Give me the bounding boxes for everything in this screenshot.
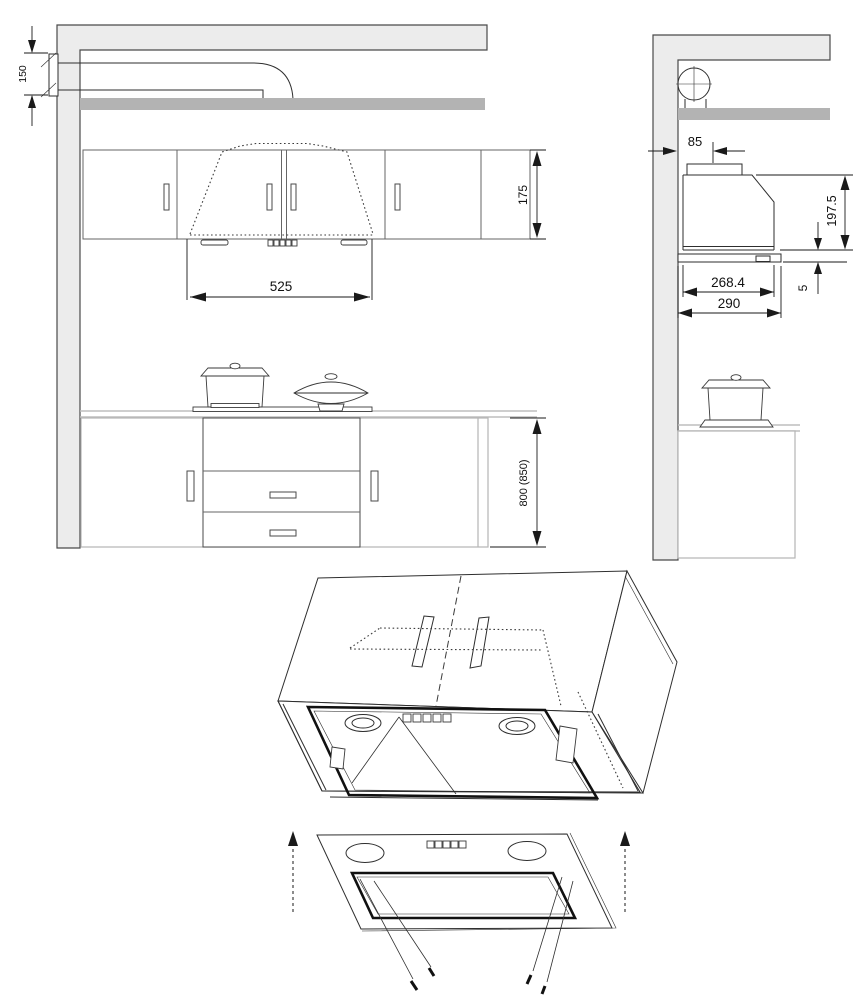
- cabinet-handle: [291, 184, 296, 210]
- hood-button: [423, 714, 431, 722]
- cabinet-front-face: [278, 571, 627, 712]
- wok-base: [318, 404, 344, 411]
- bottom-panel-view: [288, 831, 630, 994]
- dimension-800: 800 (850): [490, 418, 546, 547]
- wok-front: [294, 374, 368, 411]
- drawer-handle: [270, 492, 296, 498]
- screw-right-2: [542, 986, 545, 994]
- filter-clip-left: [330, 747, 345, 769]
- pot-body: [708, 388, 763, 420]
- hood-button: [268, 240, 273, 246]
- dim-label-85: 85: [688, 134, 702, 149]
- panel-button: [459, 841, 466, 848]
- arrowhead: [288, 831, 298, 846]
- drawer-handle: [270, 530, 296, 536]
- dimension-525: 525: [190, 279, 370, 302]
- hood-button: [280, 240, 285, 246]
- hood-button: [274, 240, 279, 246]
- pot-knob: [230, 363, 240, 369]
- arrowhead: [683, 288, 697, 297]
- dim-5-lines: [783, 222, 847, 294]
- drawer-stack: [203, 418, 360, 547]
- arrowhead: [767, 309, 781, 318]
- duct-bottom-line: [58, 90, 263, 99]
- door-handle: [187, 471, 194, 501]
- diagram-canvas: 150 525: [0, 0, 861, 1000]
- wok-knob: [325, 374, 337, 380]
- arrowhead: [190, 293, 206, 302]
- arrowhead: [841, 176, 850, 191]
- dimension-268-4: 268.4: [683, 265, 774, 297]
- pot-body: [206, 376, 264, 407]
- lift-arrow-right: [620, 831, 630, 912]
- side-shelf: [678, 108, 830, 120]
- upper-cabinet-run: [83, 150, 530, 239]
- arrowhead: [841, 235, 850, 250]
- upper-cabinets: [83, 150, 530, 239]
- dim-label-525: 525: [270, 279, 293, 294]
- panel-button: [443, 841, 450, 848]
- cabinet-handle: [164, 184, 169, 210]
- duct-circle-cross: [676, 66, 712, 102]
- hood-lamp-left: [201, 240, 228, 245]
- arrowhead: [760, 288, 774, 297]
- hood-body-outline: [683, 175, 774, 250]
- dim-label-150: 150: [17, 65, 29, 83]
- pot-front: [201, 363, 269, 407]
- hood-button: [433, 714, 441, 722]
- screw-left-2: [429, 968, 434, 976]
- side-section-view: 85 197.5 5 26: [648, 35, 853, 560]
- arrowhead: [28, 95, 36, 108]
- side-base-cabinet: [678, 431, 795, 558]
- dim-label-197-5: 197.5: [825, 195, 839, 226]
- pot-base: [700, 420, 773, 427]
- hood-duct-collar: [687, 164, 742, 175]
- front-elevation-view: 150 525: [17, 25, 546, 548]
- panel-button: [427, 841, 434, 848]
- dim-label-5: 5: [796, 284, 810, 291]
- arrowhead: [713, 147, 727, 155]
- duct-top-line: [58, 63, 293, 99]
- hood-button: [413, 714, 421, 722]
- lift-arrow-left: [288, 831, 298, 912]
- pot-lid: [702, 380, 770, 388]
- panel-clip: [756, 256, 770, 262]
- hood-lamp-right: [341, 240, 367, 245]
- arrowhead: [814, 238, 822, 250]
- hood-button: [443, 714, 451, 722]
- dim-label-800: 800 (850): [518, 459, 530, 506]
- pot-knob: [731, 375, 741, 381]
- arrowhead: [28, 40, 36, 53]
- cabinet-handle: [395, 184, 400, 210]
- screw-right-1: [527, 975, 531, 984]
- panel-button: [435, 841, 442, 848]
- installation-diagram: 150 525: [0, 0, 861, 1000]
- hood-side-profile: [678, 164, 781, 262]
- arrowhead: [533, 419, 542, 434]
- pot-base: [211, 404, 259, 408]
- arrowhead: [678, 309, 692, 318]
- filter-clip-right: [556, 726, 577, 763]
- hood-button: [292, 240, 297, 246]
- isometric-hood-view: [278, 571, 677, 800]
- screw-left-1: [411, 981, 417, 990]
- arrowhead: [533, 531, 542, 546]
- base-cabinets: [81, 418, 488, 547]
- dimension-197-5: 197.5: [756, 175, 853, 250]
- arrowhead: [533, 151, 542, 166]
- cabinet-handle: [267, 184, 272, 210]
- arrowhead: [354, 293, 370, 302]
- door-handle: [371, 471, 378, 501]
- front-shelf: [80, 98, 485, 110]
- pot-side: [700, 375, 773, 427]
- dim-label-268-4: 268.4: [711, 275, 745, 290]
- dimension-5: 5: [783, 222, 847, 294]
- dim-label-175: 175: [516, 185, 530, 205]
- panel-button: [451, 841, 458, 848]
- hood-button: [403, 714, 411, 722]
- hood-button: [286, 240, 291, 246]
- dim-label-290: 290: [718, 296, 741, 311]
- duct-collar: [49, 54, 58, 96]
- dimension-150: 150: [17, 26, 48, 126]
- arrowhead: [533, 223, 542, 238]
- arrowhead: [814, 262, 822, 274]
- arrowhead: [620, 831, 630, 846]
